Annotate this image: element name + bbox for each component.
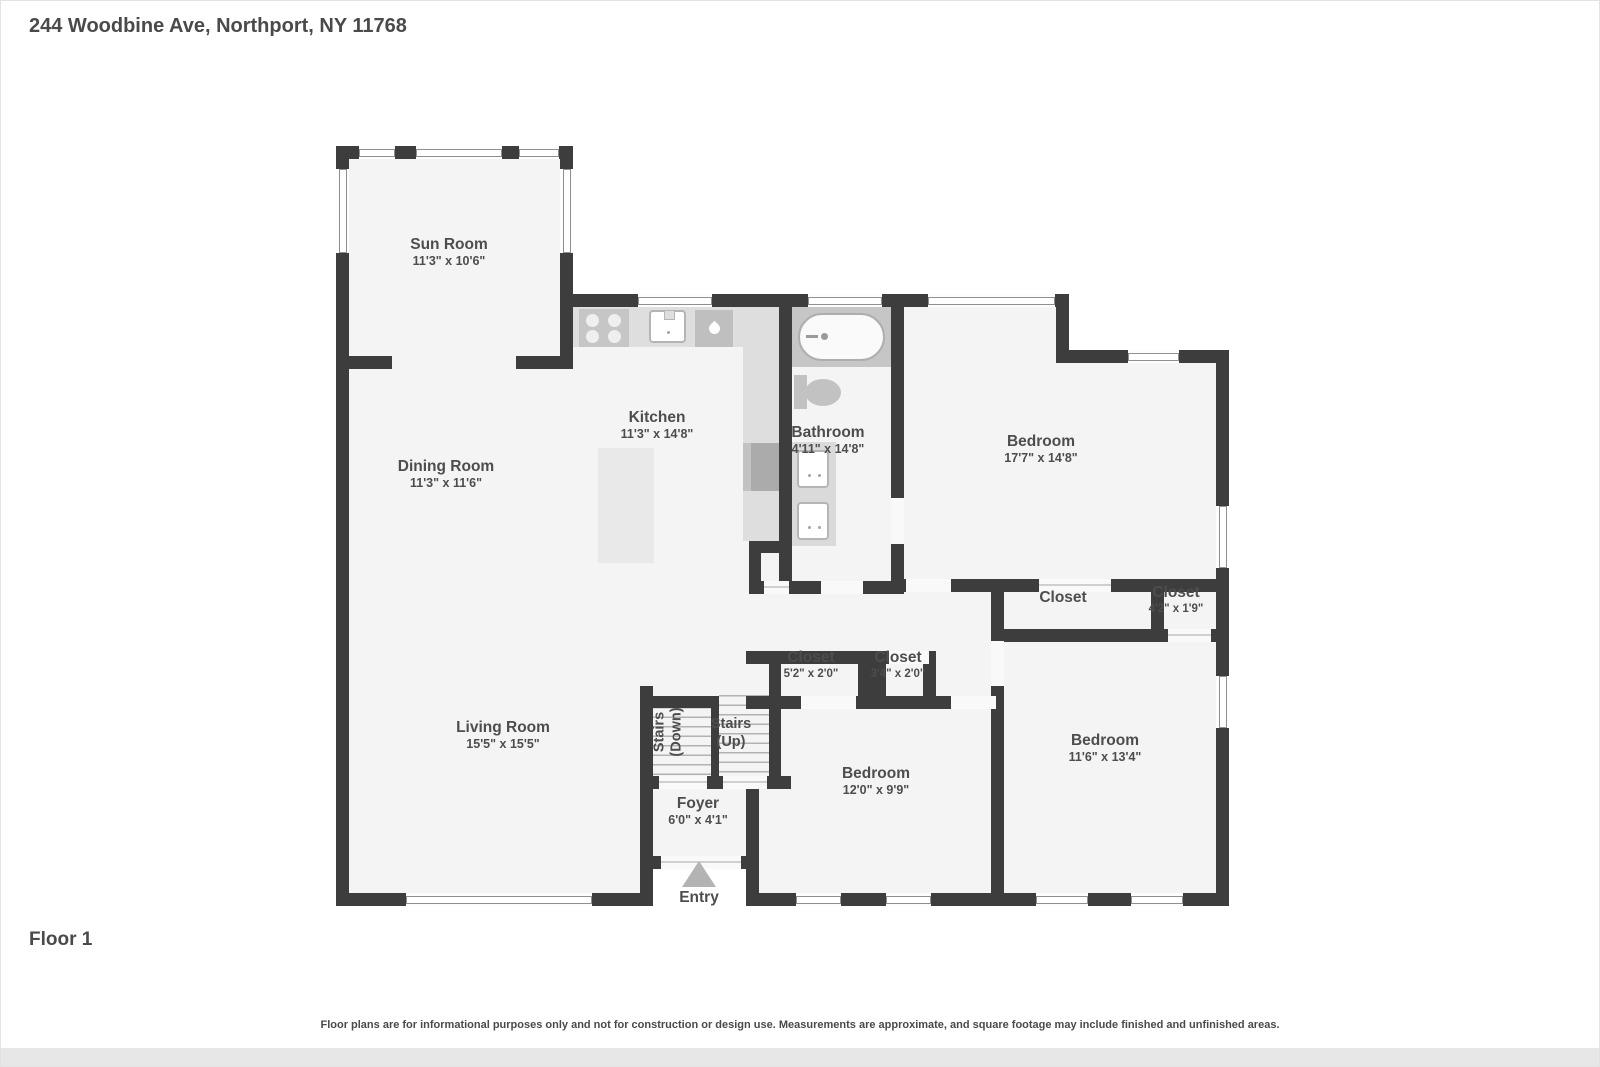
wall: [648, 696, 719, 708]
room-area-bedroom1-ext: [1056, 350, 1229, 592]
window: [638, 294, 712, 307]
dishwasher: [695, 310, 733, 347]
burner-icon: [586, 314, 599, 327]
wall: [336, 356, 349, 906]
burner-icon: [608, 314, 621, 327]
label-bedroom-3: Bedroom11'6" x 13'4": [1069, 731, 1142, 766]
disclaimer: Floor plans are for informational purpos…: [1, 1019, 1599, 1031]
window: [1036, 893, 1088, 906]
window: [560, 169, 573, 253]
sink-drain-icon: [818, 474, 821, 477]
window: [359, 146, 395, 159]
window: [519, 146, 559, 159]
door-opening: [659, 776, 707, 789]
label-bathroom: Bathroom4'11" x 14'8": [791, 423, 864, 458]
label-dining-room: Dining Room11'3" x 11'6": [398, 457, 494, 492]
sink-drain-icon: [818, 526, 821, 529]
window: [1128, 350, 1179, 363]
vanity-sink: [797, 502, 829, 540]
window: [1216, 506, 1229, 568]
kitchen-sink: [649, 310, 686, 343]
room-area-hallway: [636, 581, 1004, 701]
label-stairs-up: Stairs(Up): [711, 715, 751, 751]
window: [416, 146, 502, 159]
door-opening: [891, 498, 904, 544]
window: [796, 893, 841, 906]
window: [928, 294, 1055, 307]
burner-icon: [586, 330, 599, 343]
door-opening: [723, 776, 767, 789]
label-closet-mid-left: Closet5'2" x 2'0": [784, 648, 839, 682]
label-entry: Entry: [679, 888, 719, 907]
toilet-bowl: [805, 379, 841, 406]
window: [886, 893, 931, 906]
bathtub: [798, 313, 885, 361]
burner-icon: [608, 330, 621, 343]
door-opening: [991, 641, 1004, 686]
floor-plan: Sun Room11'3" x 10'6" Kitchen11'3" x 14'…: [1, 1, 1600, 1067]
floor-plan-page: 244 Woodbine Ave, Northport, NY 11768: [0, 0, 1600, 1067]
door-opening: [1168, 629, 1211, 642]
label-kitchen: Kitchen11'3" x 14'8": [621, 408, 694, 443]
window: [808, 294, 882, 307]
floor-label: Floor 1: [29, 929, 92, 951]
tub-faucet-icon: [806, 335, 818, 338]
sink-drain-icon: [808, 474, 811, 477]
door-opening: [951, 696, 996, 709]
refrigerator: [751, 443, 779, 491]
bottom-strip: [1, 1048, 1599, 1067]
window: [1216, 676, 1229, 728]
stove: [579, 309, 629, 347]
door-opening: [906, 579, 951, 592]
sink-drain-icon: [808, 526, 811, 529]
refrigerator-handle: [743, 443, 751, 491]
kitchen-island: [598, 448, 654, 563]
window: [406, 893, 592, 906]
wall: [1216, 350, 1229, 906]
wall: [769, 651, 781, 783]
wall: [991, 579, 1004, 906]
label-stairs-down: Stairs(Down): [652, 707, 687, 756]
sink-drain-icon: [667, 331, 670, 334]
wall: [891, 294, 904, 594]
label-closet-right: Closet4'2" x 1'9": [1149, 583, 1204, 617]
sink-faucet-icon: [664, 310, 675, 320]
label-closet-mid-right: Closet3'4" x 2'0": [871, 648, 926, 682]
door-opening: [821, 581, 863, 594]
window: [1131, 893, 1183, 906]
door-opening: [801, 696, 856, 709]
water-drop-icon: [707, 321, 723, 337]
window: [336, 169, 349, 253]
entry-arrow-icon: [682, 861, 716, 887]
tub-knob-icon: [821, 333, 828, 340]
label-closet-hall: Closet: [1039, 588, 1086, 607]
label-foyer: Foyer6'0" x 4'1": [668, 794, 728, 829]
label-living-room: Living Room15'5" x 15'5": [456, 718, 550, 753]
wall: [746, 776, 759, 906]
label-bedroom-1: Bedroom17'7" x 14'8": [1004, 432, 1077, 467]
label-sun-room: Sun Room11'3" x 10'6": [410, 235, 488, 270]
door-opening: [764, 581, 789, 594]
wall: [516, 356, 573, 369]
label-bedroom-2: Bedroom12'0" x 9'9": [842, 764, 910, 799]
